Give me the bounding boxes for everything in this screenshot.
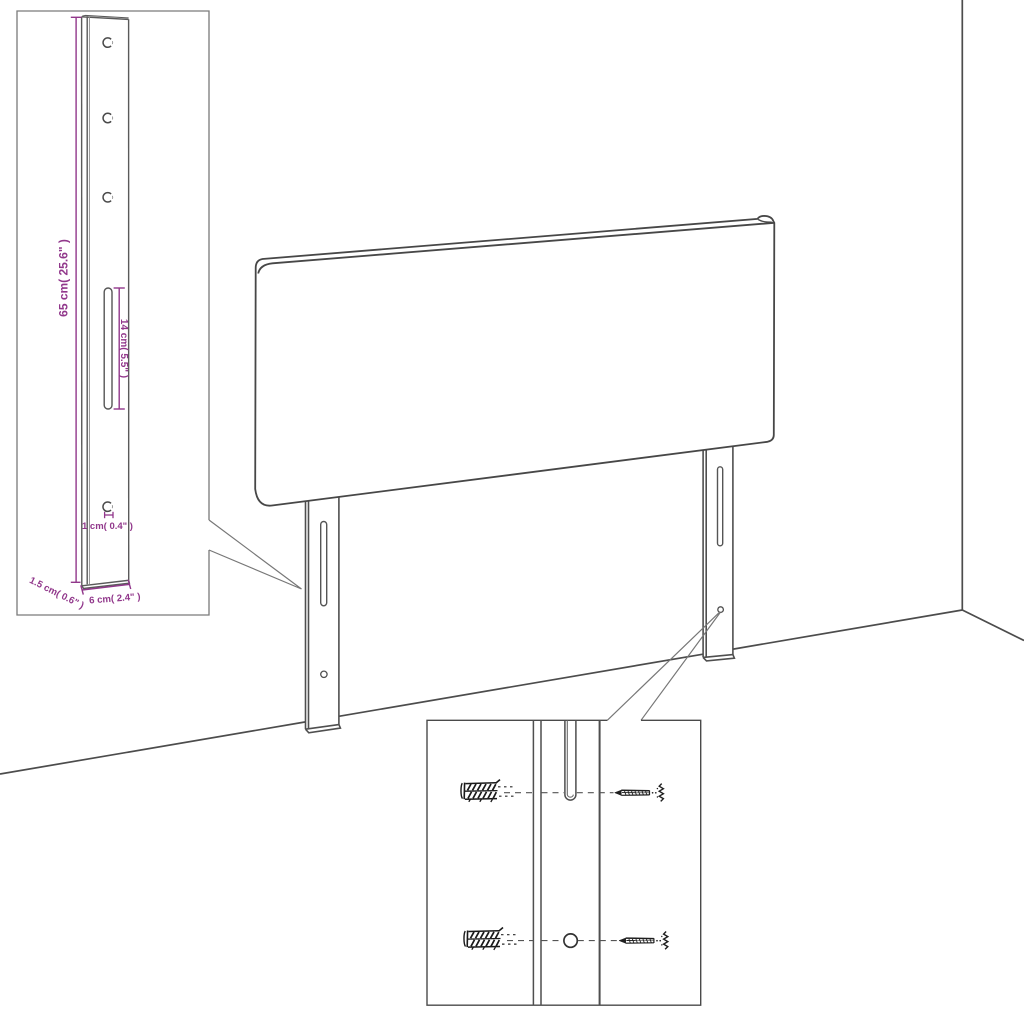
svg-text:1 cm( 0.4" ): 1 cm( 0.4" ) <box>82 521 133 532</box>
svg-text:1.5 cm( 0.6" ): 1.5 cm( 0.6" ) <box>27 575 85 611</box>
svg-text:14 cm( 5.5" ): 14 cm( 5.5" ) <box>118 319 129 378</box>
svg-text:65 cm( 25.6" ): 65 cm( 25.6" ) <box>57 239 71 317</box>
svg-text:6 cm( 2.4" ): 6 cm( 2.4" ) <box>89 592 141 607</box>
